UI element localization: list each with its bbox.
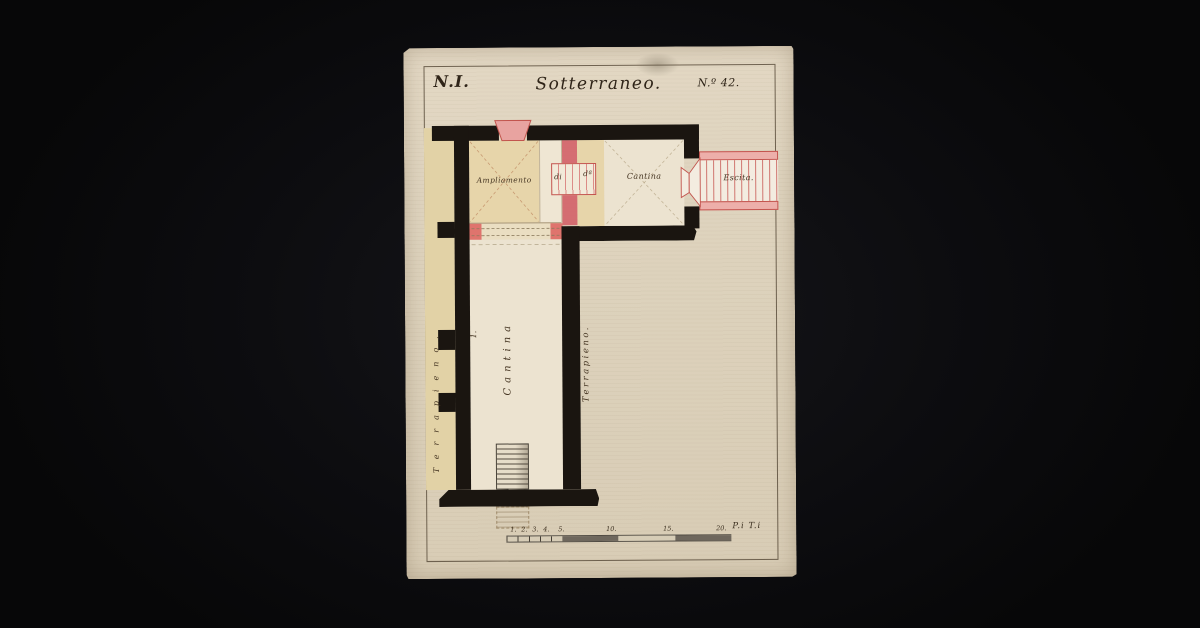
wall-top-right (527, 124, 699, 140)
wall-south (439, 489, 599, 507)
exit-stair-top-rail (699, 151, 778, 160)
room-cantina-top (604, 139, 685, 225)
buttress-2 (438, 330, 455, 350)
scale-unit-label: P.i T.i (732, 521, 761, 531)
new-pier-left (469, 224, 481, 240)
label-long-room-number: 1. (469, 331, 478, 339)
scale-segment-10-15 (618, 536, 675, 541)
wall-east-upper (684, 124, 699, 158)
scale-bar (506, 534, 731, 542)
sheet-number-right: N.º 42. (698, 76, 740, 89)
new-opening-band (469, 222, 561, 240)
sheet-title: Sotterraneo. (514, 73, 684, 94)
buttress-1 (437, 222, 454, 238)
photo-stage: N.I. Sotterraneo. N.º 42. (0, 0, 1200, 628)
exit-stair-bottom-rail (699, 201, 778, 210)
scale-tick-15: 15. (661, 525, 675, 533)
scale-tick-20: 20. (714, 524, 728, 532)
scale-tick-5: 5. (554, 525, 568, 533)
wall-east-lower (684, 206, 699, 228)
label-escita: Escita. (699, 173, 778, 182)
wall-wing-bottom (567, 225, 696, 241)
buttress-3 (438, 393, 455, 412)
label-cantina-long: Cantina (502, 296, 514, 396)
label-da: dª (583, 169, 592, 178)
scale-segment-units (506, 536, 562, 541)
paper-sheet: N.I. Sotterraneo. N.º 42. (403, 46, 796, 579)
label-di: di (554, 172, 562, 181)
label-terrapieno-right: Terrapieno. (581, 307, 592, 402)
scale-segment-5-10 (562, 536, 618, 541)
sheet-number-left: N.I. (434, 72, 470, 91)
wall-long-east (561, 226, 581, 489)
scale-segment-15-20 (675, 535, 731, 540)
label-ampliamento: Ampliamento (469, 175, 539, 184)
long-room-stairs (496, 443, 529, 489)
scale-tick-4: 4. (539, 525, 553, 533)
label-cantina-top: Cantina (604, 171, 684, 180)
scale-tick-10: 10. (604, 525, 618, 533)
